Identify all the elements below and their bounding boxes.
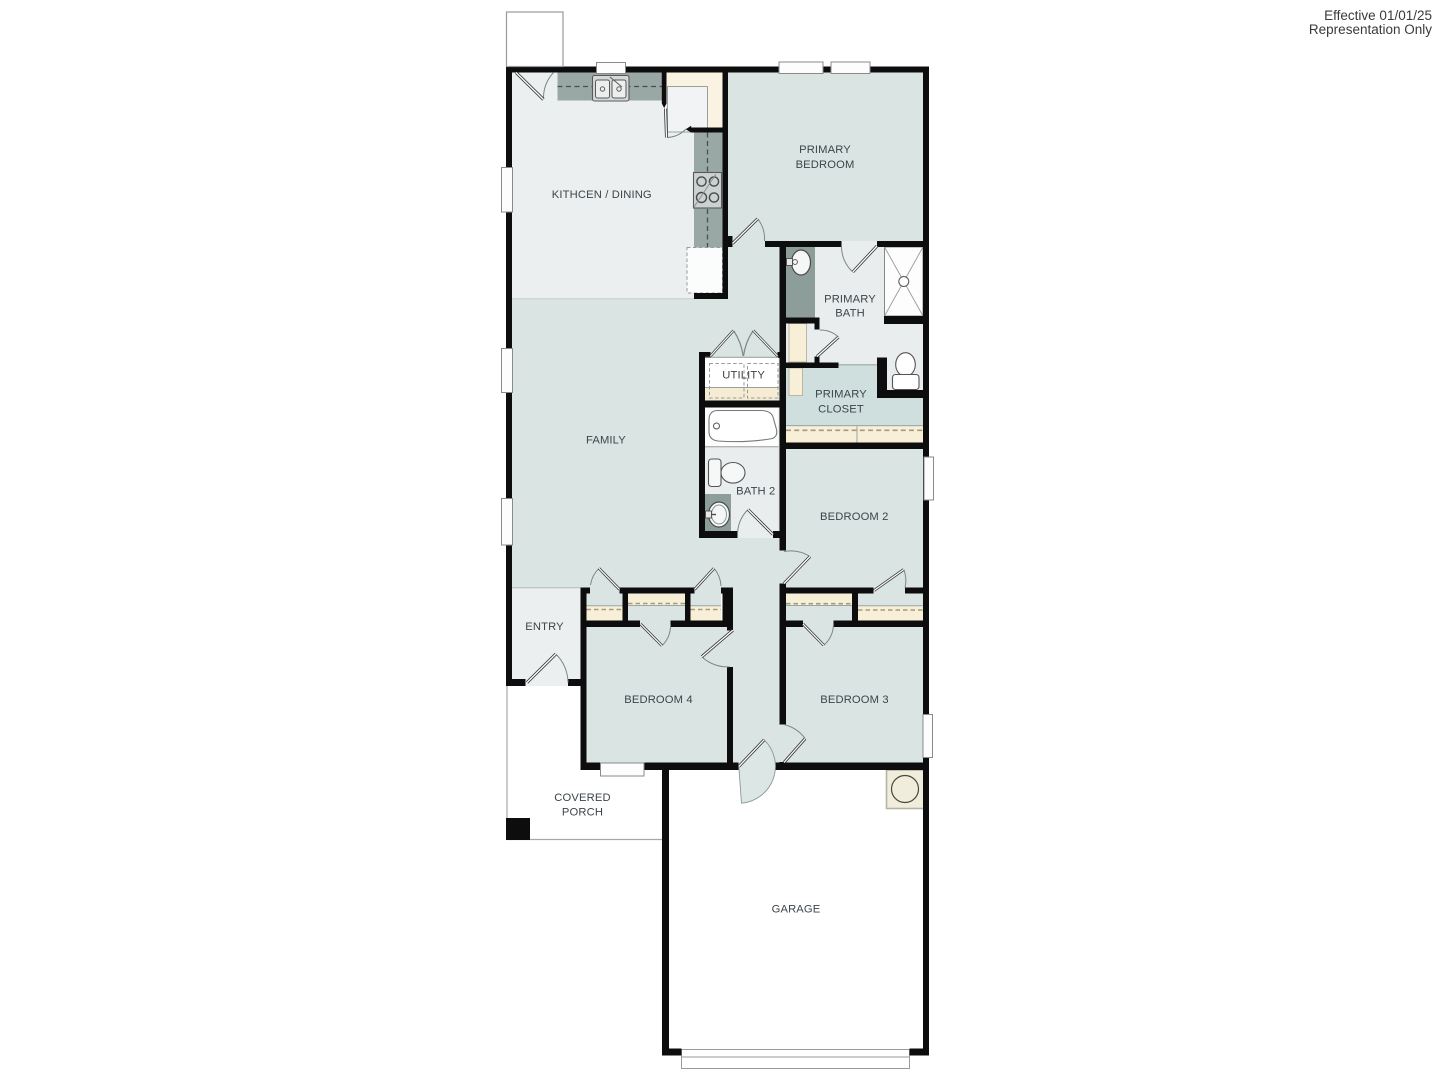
svg-text:PORCH: PORCH: [562, 806, 603, 818]
svg-text:Effective 01/01/25: Effective 01/01/25: [1324, 8, 1432, 23]
svg-text:ENTRY: ENTRY: [525, 621, 564, 633]
svg-text:FAMILY: FAMILY: [586, 435, 626, 447]
svg-text:BEDROOM: BEDROOM: [796, 159, 855, 171]
svg-text:PRIMARY: PRIMARY: [824, 293, 876, 305]
svg-text:PRIMARY: PRIMARY: [815, 389, 867, 401]
svg-text:KITHCEN / DINING: KITHCEN / DINING: [552, 189, 652, 201]
svg-text:BATH: BATH: [835, 308, 865, 320]
svg-text:BEDROOM 4: BEDROOM 4: [624, 694, 693, 706]
svg-text:PRIMARY: PRIMARY: [799, 144, 851, 156]
svg-text:BATH 2: BATH 2: [736, 485, 775, 497]
svg-text:BEDROOM 3: BEDROOM 3: [820, 694, 889, 706]
svg-text:UTILITY: UTILITY: [722, 370, 765, 382]
svg-text:GARAGE: GARAGE: [772, 904, 821, 916]
svg-text:BEDROOM 2: BEDROOM 2: [820, 511, 889, 523]
svg-text:Representation Only: Representation Only: [1309, 22, 1432, 37]
svg-text:COVERED: COVERED: [554, 792, 610, 804]
svg-text:CLOSET: CLOSET: [818, 403, 864, 415]
